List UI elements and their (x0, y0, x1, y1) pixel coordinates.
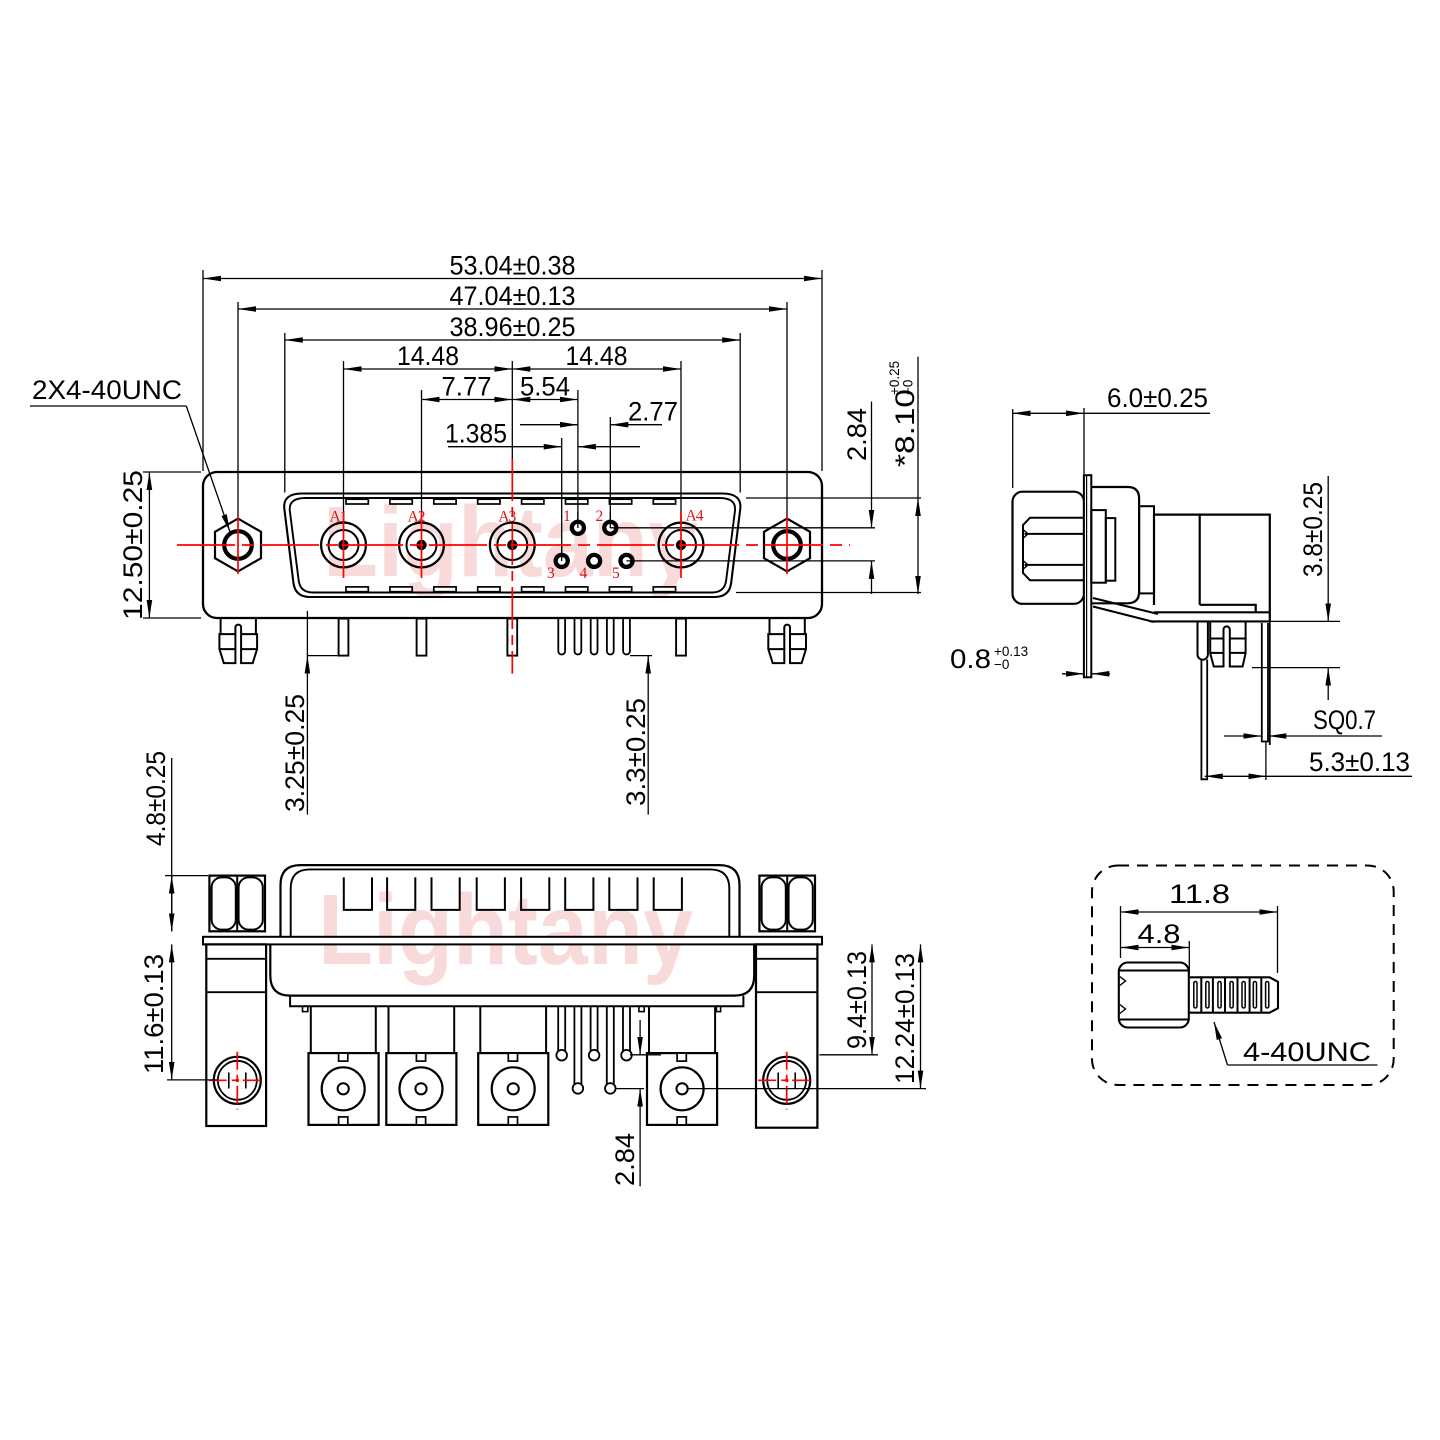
svg-text:14.48: 14.48 (566, 341, 628, 371)
svg-text:1: 1 (563, 508, 571, 525)
svg-text:A2: A2 (408, 509, 426, 526)
svg-text:11.8: 11.8 (1169, 879, 1230, 909)
svg-text:0.8: 0.8 (950, 644, 991, 674)
svg-text:2: 2 (596, 508, 604, 525)
svg-text:6.0±0.25: 6.0±0.25 (1107, 383, 1208, 413)
svg-text:14.48: 14.48 (397, 341, 459, 371)
svg-text:2.77: 2.77 (628, 397, 678, 427)
svg-text:12.50±0.25: 12.50±0.25 (118, 470, 148, 620)
svg-text:4.8±0.25: 4.8±0.25 (141, 751, 171, 846)
svg-text:9.4±0.13: 9.4±0.13 (842, 951, 872, 1049)
svg-text:4: 4 (580, 565, 588, 582)
svg-text:2.84: 2.84 (842, 408, 872, 461)
svg-text:3.3±0.25: 3.3±0.25 (621, 698, 651, 806)
svg-text:38.96±0.25: 38.96±0.25 (450, 312, 576, 342)
svg-text:SQ0.7: SQ0.7 (1313, 705, 1376, 735)
svg-text:5.54: 5.54 (520, 372, 570, 402)
svg-text:3.25±0.25: 3.25±0.25 (280, 694, 310, 812)
svg-text:53.04±0.38: 53.04±0.38 (450, 251, 576, 281)
svg-text:5: 5 (612, 565, 620, 582)
svg-text:2X4-40UNC: 2X4-40UNC (32, 375, 182, 405)
svg-text:5.3±0.13: 5.3±0.13 (1309, 747, 1410, 777)
svg-text:−0: −0 (994, 657, 1009, 672)
svg-text:A4: A4 (686, 508, 704, 525)
svg-text:2.84: 2.84 (610, 1133, 640, 1186)
svg-text:−0: −0 (901, 380, 916, 395)
svg-text:3.8±0.25: 3.8±0.25 (1298, 482, 1328, 577)
svg-text:47.04±0.13: 47.04±0.13 (450, 281, 576, 311)
svg-text:12.24±0.13: 12.24±0.13 (890, 953, 920, 1084)
svg-text:11.6±0.13: 11.6±0.13 (139, 954, 169, 1074)
svg-text:A3: A3 (498, 509, 516, 526)
svg-text:1.385: 1.385 (445, 419, 507, 449)
svg-text:4.8: 4.8 (1138, 919, 1181, 949)
svg-text:7.77: 7.77 (442, 372, 492, 402)
svg-text:A1: A1 (330, 509, 348, 526)
svg-text:4-40UNC: 4-40UNC (1243, 1037, 1371, 1067)
svg-text:*8.10: *8.10 (890, 389, 920, 467)
svg-text:3: 3 (547, 565, 555, 582)
